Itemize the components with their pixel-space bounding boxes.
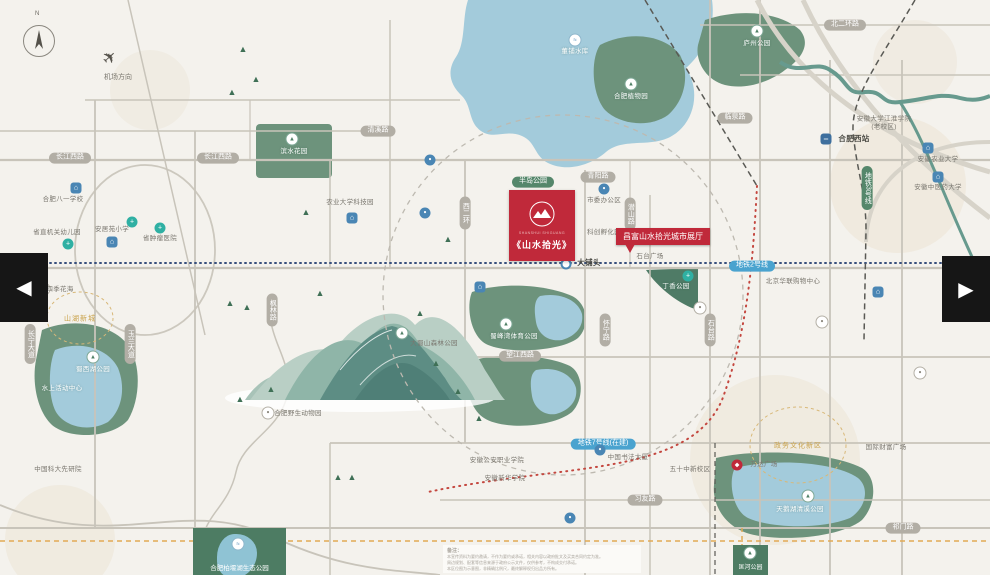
- map-disclaimer: 备注： 本宣传资料为要约邀请，不作为要约或承诺，相关内容以政府批文及买卖合同约定…: [443, 545, 641, 573]
- svg-text:▲: ▲: [334, 472, 343, 482]
- svg-text:▲: ▲: [348, 472, 357, 482]
- svg-text:▲: ▲: [444, 234, 453, 244]
- carousel-next-button[interactable]: ▶: [942, 256, 990, 322]
- callout-pointer: [625, 244, 635, 253]
- disclaimer-line: 本区位图为示意图，非精确比例尺，最终解释权归出品方所有。: [447, 566, 637, 572]
- carousel-prev-button[interactable]: ◀: [0, 253, 48, 322]
- compass-north-label: N: [35, 11, 39, 17]
- baiyan-lake-park-block: 合肥柏堰湖生态公园: [193, 528, 286, 575]
- svg-text:▲: ▲: [475, 413, 484, 423]
- brand-mountain-logo-icon: [528, 200, 556, 228]
- svg-text:▲: ▲: [239, 44, 248, 54]
- svg-text:▲: ▲: [228, 87, 237, 97]
- svg-text:▲: ▲: [316, 288, 325, 298]
- svg-text:▲: ▲: [252, 74, 261, 84]
- svg-text:▲: ▲: [432, 358, 441, 368]
- svg-text:▲: ▲: [243, 302, 252, 312]
- svg-text:▲: ▲: [302, 207, 311, 217]
- airport-direction-label: 机场方向: [104, 72, 132, 82]
- compass-icon: [23, 25, 55, 57]
- svg-text:▲: ▲: [226, 298, 235, 308]
- svg-text:▲: ▲: [267, 384, 276, 394]
- project-logo-block: SHANSHUI SHIGUANG 《山水拾光》: [509, 190, 575, 261]
- brand-pinyin: SHANSHUI SHIGUANG: [519, 231, 565, 235]
- svg-text:▲: ▲: [454, 386, 463, 396]
- exhibition-hall-callout: 昌富山水拾光城市展厅: [616, 228, 710, 245]
- location-map: ▲▲▲ ▲▲▲ ▲▲▲ ▲▲▲ ▲▲▲ ▲ N ✈ 机场方向: [0, 0, 990, 575]
- brand-name: 《山水拾光》: [512, 238, 572, 251]
- kuanghe-park-block: 匡河公园: [733, 545, 768, 575]
- svg-text:▲: ▲: [416, 308, 425, 318]
- map-artwork: ▲▲▲ ▲▲▲ ▲▲▲ ▲▲▲ ▲▲▲ ▲: [0, 0, 990, 575]
- mountain-illustration: [225, 314, 505, 412]
- disclaimer-heading: 备注：: [447, 547, 637, 554]
- strip-park-label: 匡河公园: [738, 562, 762, 571]
- svg-text:▲: ▲: [236, 394, 245, 404]
- banner-park-label: 合肥柏堰湖生态公园: [210, 562, 269, 572]
